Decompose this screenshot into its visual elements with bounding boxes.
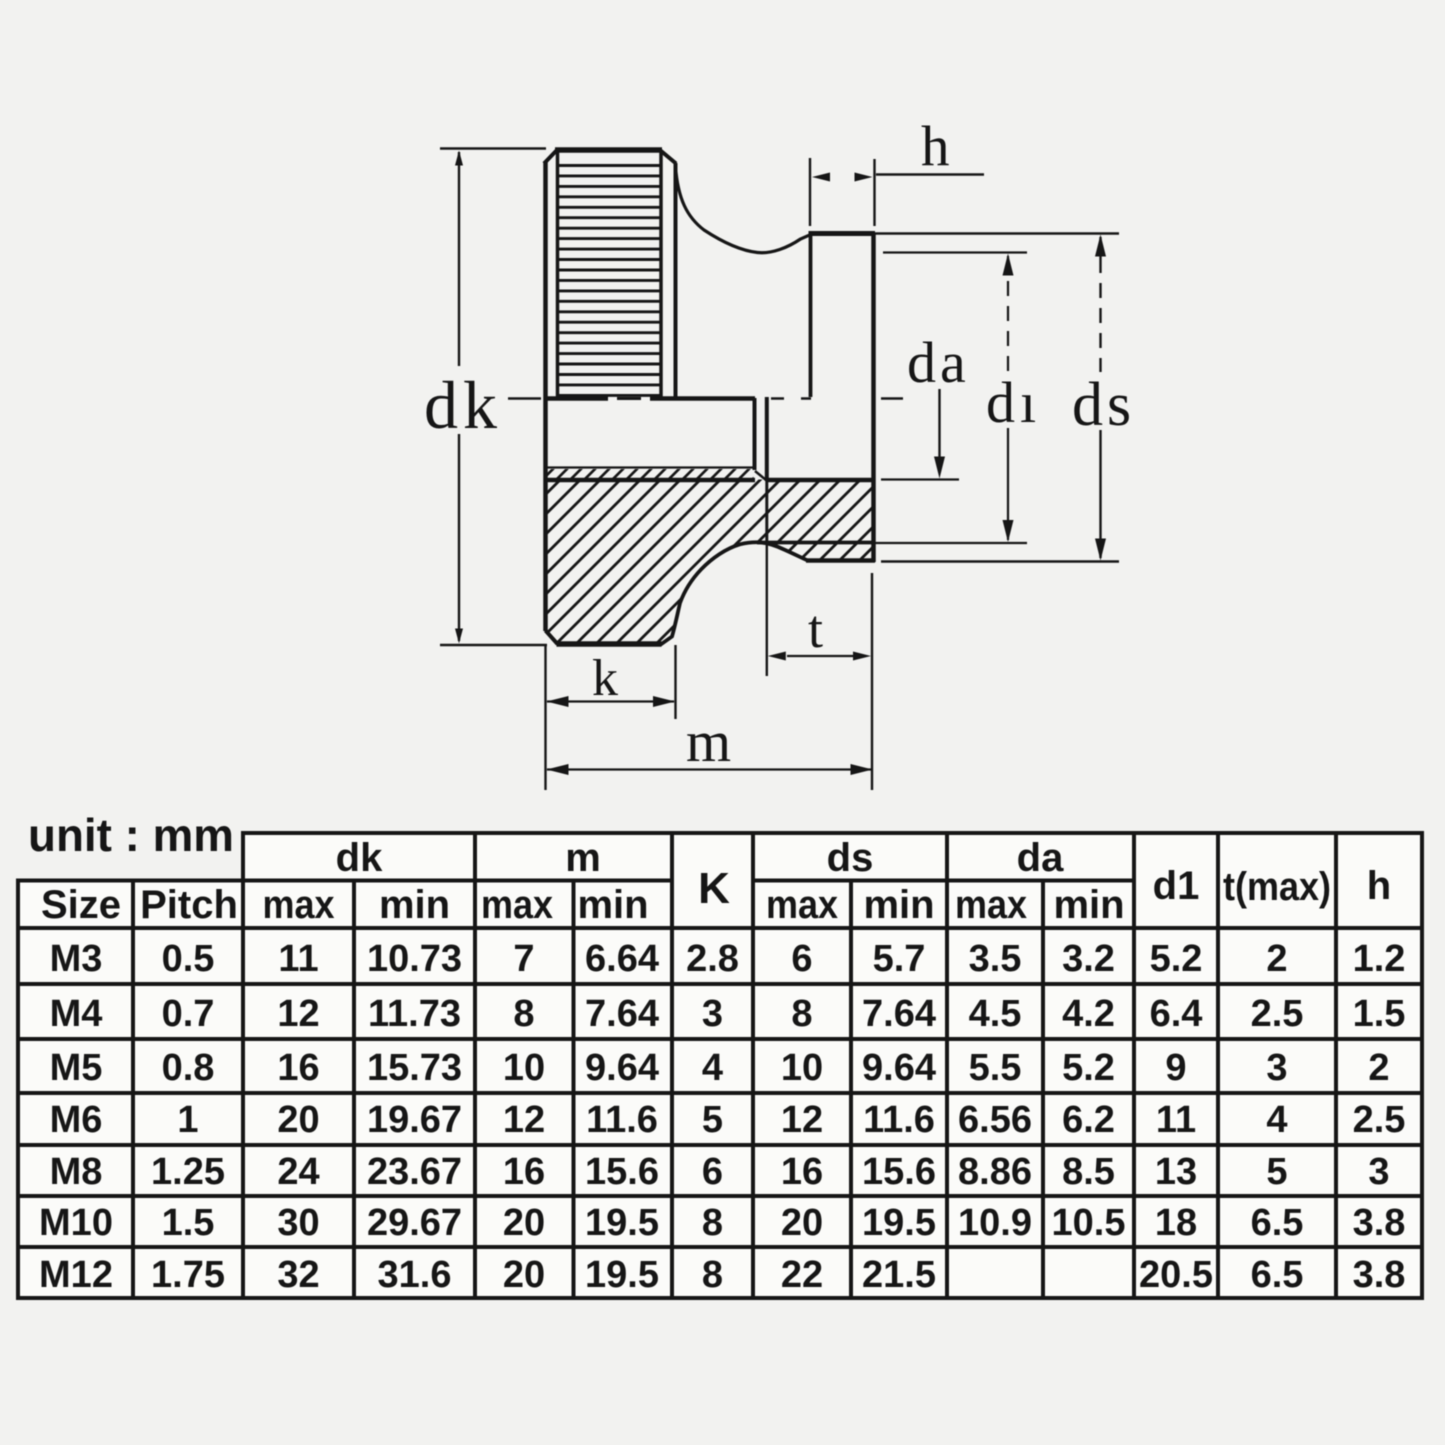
svg-text:k: k bbox=[592, 650, 618, 707]
svg-text:10.9: 10.9 bbox=[958, 1202, 1032, 1244]
svg-text:6.2: 6.2 bbox=[1062, 1099, 1115, 1141]
svg-text:5.2: 5.2 bbox=[1062, 1047, 1115, 1089]
svg-text:8: 8 bbox=[702, 1202, 723, 1244]
svg-text:13: 13 bbox=[1155, 1151, 1197, 1193]
svg-text:dk: dk bbox=[336, 836, 383, 880]
svg-text:8.5: 8.5 bbox=[1062, 1151, 1115, 1193]
svg-text:t(max): t(max) bbox=[1223, 865, 1331, 909]
svg-text:ds: ds bbox=[1072, 371, 1135, 439]
svg-text:3.8: 3.8 bbox=[1353, 1254, 1406, 1296]
svg-text:6.64: 6.64 bbox=[585, 938, 659, 980]
svg-text:M4: M4 bbox=[50, 993, 103, 1035]
svg-text:19.5: 19.5 bbox=[585, 1202, 659, 1244]
svg-text:18: 18 bbox=[1155, 1202, 1197, 1244]
svg-text:11.6: 11.6 bbox=[863, 1099, 935, 1141]
svg-text:h: h bbox=[1367, 864, 1391, 908]
svg-text:4.2: 4.2 bbox=[1062, 993, 1115, 1035]
svg-text:20.5: 20.5 bbox=[1139, 1254, 1213, 1296]
svg-text:11.6: 11.6 bbox=[586, 1099, 658, 1141]
svg-text:4: 4 bbox=[702, 1047, 723, 1089]
svg-text:1.5: 1.5 bbox=[1353, 993, 1406, 1035]
svg-text:0.5: 0.5 bbox=[162, 938, 215, 980]
svg-text:0.8: 0.8 bbox=[162, 1047, 215, 1089]
svg-text:15.6: 15.6 bbox=[585, 1151, 659, 1193]
svg-text:ds: ds bbox=[827, 836, 874, 880]
svg-text:24: 24 bbox=[277, 1151, 319, 1193]
svg-text:Size: Size bbox=[41, 883, 121, 927]
svg-text:11: 11 bbox=[1156, 1099, 1196, 1141]
svg-text:10.5: 10.5 bbox=[1052, 1202, 1126, 1244]
svg-text:10: 10 bbox=[503, 1047, 545, 1089]
svg-text:M3: M3 bbox=[50, 938, 103, 980]
svg-text:21.5: 21.5 bbox=[862, 1254, 936, 1296]
svg-text:10: 10 bbox=[781, 1047, 823, 1089]
svg-text:K: K bbox=[698, 864, 730, 913]
svg-text:3.8: 3.8 bbox=[1353, 1202, 1406, 1244]
svg-text:min: min bbox=[379, 883, 450, 927]
svg-text:3.2: 3.2 bbox=[1062, 938, 1115, 980]
svg-text:19.5: 19.5 bbox=[585, 1254, 659, 1296]
svg-text:3.5: 3.5 bbox=[969, 938, 1022, 980]
svg-text:7: 7 bbox=[513, 938, 534, 980]
svg-text:t: t bbox=[808, 599, 823, 659]
svg-text:8: 8 bbox=[791, 993, 812, 1035]
svg-text:7.64: 7.64 bbox=[862, 993, 936, 1035]
svg-text:5: 5 bbox=[702, 1099, 723, 1141]
svg-text:4.5: 4.5 bbox=[969, 993, 1022, 1035]
svg-text:0.7: 0.7 bbox=[162, 993, 215, 1035]
svg-text:Pitch: Pitch bbox=[140, 883, 238, 927]
svg-text:2.8: 2.8 bbox=[686, 938, 739, 980]
svg-text:9: 9 bbox=[1165, 1047, 1186, 1089]
svg-text:29.67: 29.67 bbox=[367, 1202, 462, 1244]
svg-text:32: 32 bbox=[277, 1254, 319, 1296]
svg-text:1.75: 1.75 bbox=[151, 1254, 225, 1296]
svg-text:19.67: 19.67 bbox=[367, 1099, 462, 1141]
svg-text:23.67: 23.67 bbox=[367, 1151, 462, 1193]
svg-text:max: max bbox=[766, 883, 838, 927]
svg-text:3: 3 bbox=[702, 993, 723, 1035]
svg-text:2.5: 2.5 bbox=[1251, 993, 1304, 1035]
svg-text:19.5: 19.5 bbox=[862, 1202, 936, 1244]
svg-text:dk: dk bbox=[424, 367, 502, 443]
svg-text:8.86: 8.86 bbox=[958, 1151, 1032, 1193]
svg-text:9.64: 9.64 bbox=[862, 1047, 936, 1089]
svg-text:4: 4 bbox=[1266, 1099, 1287, 1141]
svg-text:6.56: 6.56 bbox=[958, 1099, 1032, 1141]
svg-text:5: 5 bbox=[1266, 1151, 1287, 1193]
svg-text:1.5: 1.5 bbox=[162, 1202, 215, 1244]
svg-text:8: 8 bbox=[513, 993, 534, 1035]
svg-text:min: min bbox=[863, 883, 934, 927]
svg-text:6.4: 6.4 bbox=[1150, 993, 1203, 1035]
svg-text:3: 3 bbox=[1266, 1047, 1287, 1089]
svg-text:max: max bbox=[955, 883, 1027, 927]
svg-text:16: 16 bbox=[503, 1151, 545, 1193]
svg-text:d1: d1 bbox=[1153, 864, 1200, 908]
svg-text:7.64: 7.64 bbox=[585, 993, 659, 1035]
svg-text:min: min bbox=[577, 883, 648, 927]
svg-text:h: h bbox=[921, 115, 950, 178]
svg-text:da: da bbox=[907, 330, 970, 395]
svg-text:15.6: 15.6 bbox=[862, 1151, 936, 1193]
svg-text:20: 20 bbox=[277, 1099, 319, 1141]
svg-text:min: min bbox=[1053, 883, 1124, 927]
svg-text:16: 16 bbox=[277, 1047, 319, 1089]
svg-text:22: 22 bbox=[781, 1254, 823, 1296]
svg-text:8: 8 bbox=[702, 1254, 723, 1296]
svg-text:6: 6 bbox=[702, 1151, 723, 1193]
svg-text:m: m bbox=[565, 836, 601, 880]
svg-text:2.5: 2.5 bbox=[1353, 1099, 1406, 1141]
svg-text:6: 6 bbox=[791, 938, 812, 980]
svg-text:dı: dı bbox=[986, 370, 1041, 435]
svg-text:unit : mm: unit : mm bbox=[28, 809, 234, 861]
svg-text:3: 3 bbox=[1368, 1151, 1389, 1193]
svg-text:m: m bbox=[686, 709, 731, 774]
svg-text:12: 12 bbox=[781, 1099, 823, 1141]
svg-text:11: 11 bbox=[278, 938, 318, 980]
svg-text:M6: M6 bbox=[50, 1099, 103, 1141]
svg-text:M10: M10 bbox=[39, 1202, 113, 1244]
svg-text:12: 12 bbox=[503, 1099, 545, 1141]
svg-text:20: 20 bbox=[503, 1254, 545, 1296]
svg-text:M5: M5 bbox=[50, 1047, 103, 1089]
svg-text:12: 12 bbox=[277, 993, 319, 1035]
svg-text:da: da bbox=[1017, 836, 1064, 880]
svg-text:M8: M8 bbox=[50, 1151, 103, 1193]
svg-text:9.64: 9.64 bbox=[585, 1047, 659, 1089]
svg-text:1: 1 bbox=[177, 1099, 198, 1141]
svg-text:5.5: 5.5 bbox=[969, 1047, 1022, 1089]
svg-text:20: 20 bbox=[781, 1202, 823, 1244]
svg-text:6.5: 6.5 bbox=[1251, 1202, 1304, 1244]
svg-text:10.73: 10.73 bbox=[367, 938, 462, 980]
svg-text:1.2: 1.2 bbox=[1353, 938, 1406, 980]
svg-text:6.5: 6.5 bbox=[1251, 1254, 1304, 1296]
svg-text:31.6: 31.6 bbox=[378, 1254, 452, 1296]
svg-text:11.73: 11.73 bbox=[368, 993, 461, 1035]
svg-text:max: max bbox=[263, 883, 335, 927]
svg-text:max: max bbox=[481, 883, 553, 927]
svg-text:5.7: 5.7 bbox=[873, 938, 926, 980]
svg-text:M12: M12 bbox=[39, 1254, 113, 1296]
svg-text:2: 2 bbox=[1368, 1047, 1389, 1089]
svg-text:20: 20 bbox=[503, 1202, 545, 1244]
svg-text:1.25: 1.25 bbox=[151, 1151, 225, 1193]
svg-text:2: 2 bbox=[1266, 938, 1287, 980]
svg-text:16: 16 bbox=[781, 1151, 823, 1193]
svg-text:5.2: 5.2 bbox=[1150, 938, 1203, 980]
svg-text:15.73: 15.73 bbox=[367, 1047, 462, 1089]
svg-text:30: 30 bbox=[277, 1202, 319, 1244]
